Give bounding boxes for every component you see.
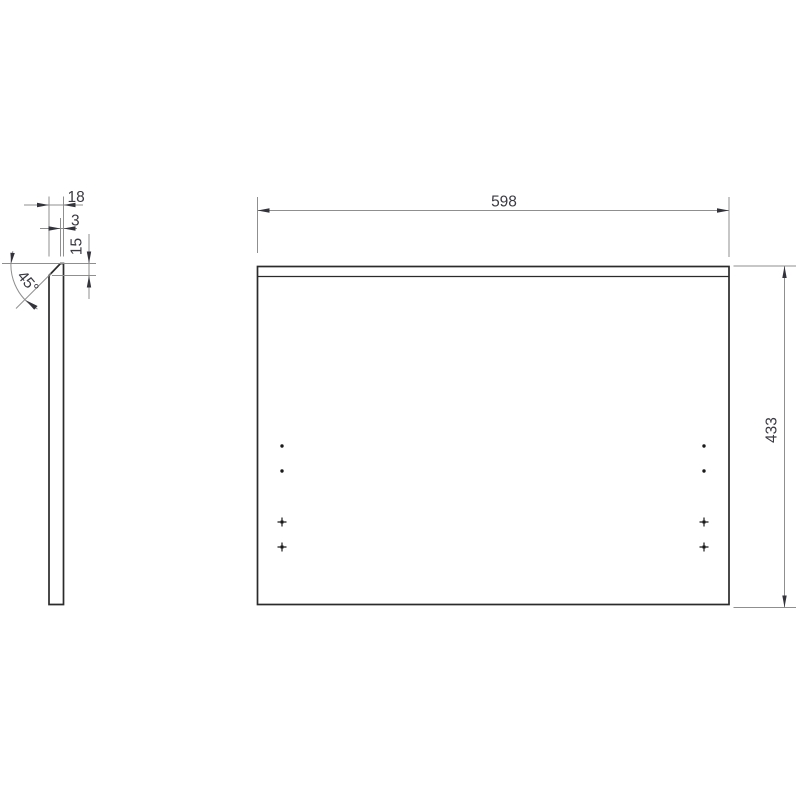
hole-marker-cross-center (703, 546, 706, 549)
hole-marker-dot (702, 469, 705, 472)
arrowhead-down-icon (87, 252, 91, 264)
arrowhead-right-icon (717, 208, 729, 212)
dimension-front-height: 433 (734, 266, 797, 608)
dim-front-width-label: 598 (491, 194, 517, 211)
side-panel-outline (49, 264, 64, 605)
arrowhead-left-icon (258, 208, 270, 212)
dim-side-chamfer-height-label: 15 (69, 238, 86, 255)
arrowhead-down-icon (782, 596, 786, 608)
arrowhead-up-icon (87, 276, 91, 288)
hole-markers-group (278, 444, 709, 551)
hole-marker-dot (702, 444, 705, 447)
dimension-front-width: 598 (258, 194, 730, 258)
dim-side-top-flat-label: 3 (71, 213, 80, 230)
technical-drawing-canvas: 598 433 18 3 (0, 0, 800, 800)
dimension-side-chamfer-angle: 45° (10, 251, 51, 310)
hole-marker-cross-center (281, 521, 284, 524)
hole-marker-dot (280, 469, 283, 472)
hole-marker-dot (280, 444, 283, 447)
dim-front-height-label: 433 (764, 417, 781, 443)
dim-side-chamfer-angle-label: 45° (14, 268, 42, 297)
front-view (258, 267, 730, 605)
side-profile-view (49, 264, 64, 605)
arrowhead-up-icon (782, 266, 786, 278)
front-panel-outline (258, 267, 730, 605)
arrowhead-right-icon (49, 226, 61, 230)
dim-side-thickness-label: 18 (68, 189, 85, 206)
arrowhead-right-icon (37, 203, 49, 207)
hole-marker-cross-center (281, 546, 284, 549)
drawing-page: 598 433 18 3 (0, 0, 800, 800)
hole-marker-cross-center (703, 521, 706, 524)
